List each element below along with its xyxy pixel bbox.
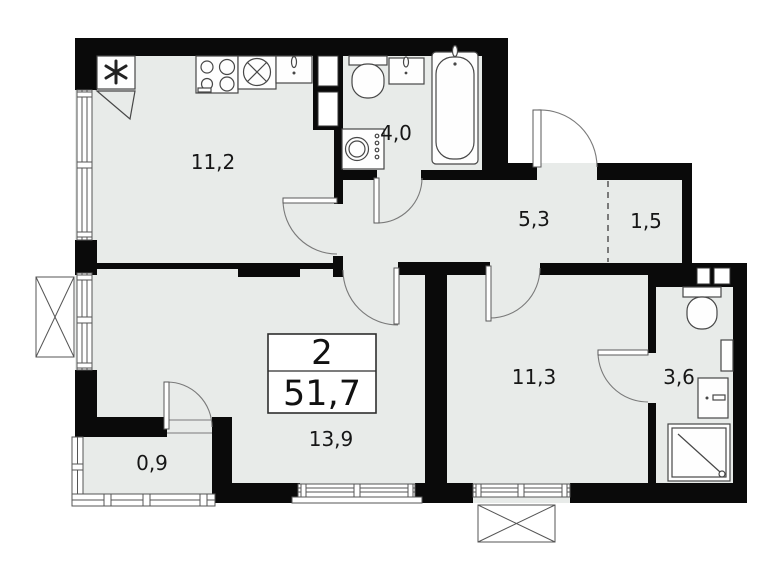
window-bedroom-bottom xyxy=(473,484,570,497)
floor-plan: 2 51,7 11,2 4,0 5,3 1,5 11,3 3,6 13,9 0,… xyxy=(0,0,780,580)
wall-post-kitchen-door xyxy=(333,256,343,277)
wall-kitchen-living-thick xyxy=(238,263,300,277)
towel-radiator-icon xyxy=(721,340,733,371)
washbasin-icon xyxy=(389,57,424,84)
vent-shaft-box xyxy=(714,268,730,284)
wall-storage-right xyxy=(682,163,692,263)
wall-bath-bottom-left xyxy=(343,170,377,180)
window-kitchen-left xyxy=(77,90,92,240)
exterior-ac-box-bottom xyxy=(478,505,555,542)
wall-right-outer xyxy=(733,263,747,503)
room-area-label-hallway: 5,3 xyxy=(518,207,550,231)
room-area-label-bathroom: 4,0 xyxy=(380,121,412,145)
window-living-bottom xyxy=(292,484,422,503)
room-area-label-storage: 1,5 xyxy=(630,209,662,233)
toilet-icon xyxy=(349,56,387,98)
washing-machine-icon xyxy=(342,129,384,169)
window-sill xyxy=(292,497,422,503)
rooms-count-label: 2 xyxy=(311,333,333,373)
wall-entry-right xyxy=(597,163,690,180)
room-area-label-kitchen: 11,2 xyxy=(191,150,236,174)
room-area-label-shower-room: 3,6 xyxy=(663,365,695,389)
wall-bottom-left xyxy=(232,483,300,503)
wall-left-mid xyxy=(75,240,97,275)
wall-bedroom-shower-lower xyxy=(648,403,656,483)
washbasin-2-icon xyxy=(698,378,728,418)
stove-icon xyxy=(196,56,238,93)
wall-hall-bedroom-left xyxy=(398,262,490,275)
total-area-label: 51,7 xyxy=(283,374,361,414)
wall-balcony-top xyxy=(75,417,167,437)
window-living-left xyxy=(77,273,92,370)
shower-tray-icon xyxy=(668,424,730,481)
vent-shaft-box xyxy=(318,92,338,126)
vent-shaft-box xyxy=(318,56,338,86)
kitchen-sink-icon xyxy=(238,56,276,89)
toilet-2-icon xyxy=(683,287,721,329)
apartment-info-box: 2 51,7 xyxy=(268,333,376,414)
bathtub-icon xyxy=(432,46,478,165)
wall-bedroom-shower-upper xyxy=(648,275,656,353)
wall-bottom-right xyxy=(570,483,747,503)
room-area-label-living-room: 13,9 xyxy=(309,427,354,451)
room-area-label-bedroom: 11,3 xyxy=(512,365,557,389)
vent-shaft-box xyxy=(697,268,710,284)
wall-pillar-balcony xyxy=(212,417,232,503)
wall-living-bedroom xyxy=(425,275,447,483)
wall-top xyxy=(75,38,487,56)
countertop-basin-icon xyxy=(276,56,312,83)
room-area-label-balcony: 0,9 xyxy=(136,451,168,475)
wall-corner-topright xyxy=(482,38,508,180)
floor-plan-canvas: 2 51,7 11,2 4,0 5,3 1,5 11,3 3,6 13,9 0,… xyxy=(0,0,780,580)
wall-hall-bedroom-right xyxy=(540,263,655,275)
wall-bottom-mid xyxy=(415,483,473,503)
wall-left-upper xyxy=(75,38,97,90)
wall-bath-bottom-right xyxy=(421,170,482,180)
exterior-ac-box-left xyxy=(36,277,74,357)
entry-door xyxy=(533,110,597,167)
